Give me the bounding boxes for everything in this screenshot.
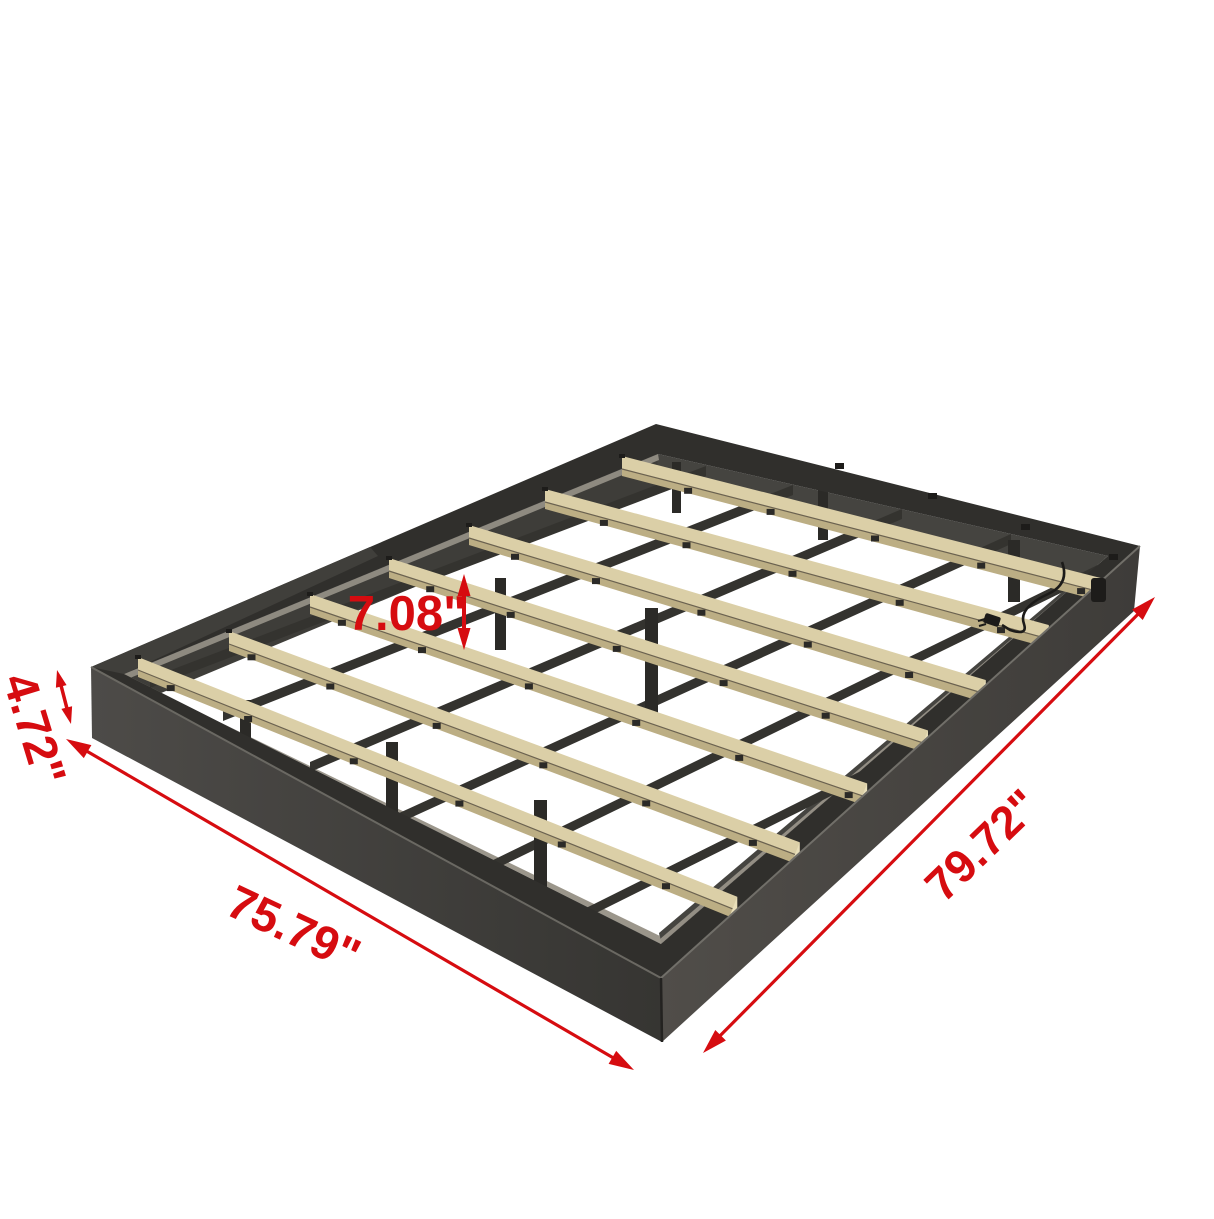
svg-text:7.08": 7.08" [348,587,467,641]
